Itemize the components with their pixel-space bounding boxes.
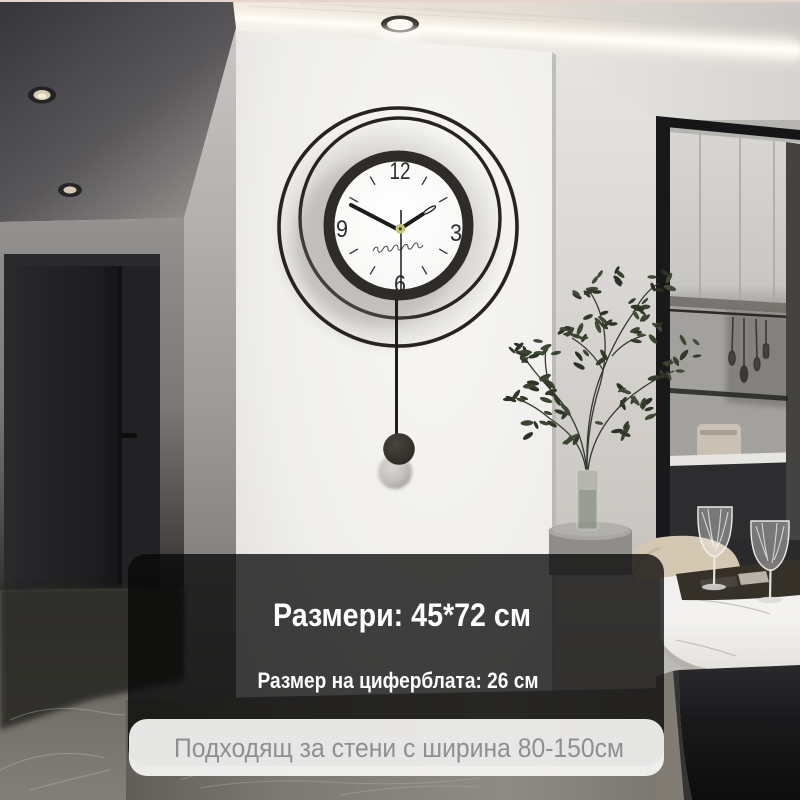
svg-text:12: 12 bbox=[390, 158, 411, 185]
svg-text:Размер на циферблата: 26 см: Размер на циферблата: 26 см bbox=[258, 668, 539, 693]
svg-text:6: 6 bbox=[394, 271, 406, 298]
svg-text:3: 3 bbox=[450, 220, 462, 247]
svg-text:Подходящ за стени с ширина 80-: Подходящ за стени с ширина 80-150см bbox=[174, 733, 624, 763]
svg-text:9: 9 bbox=[336, 216, 348, 243]
svg-text:Размери: 45*72 см: Размери: 45*72 см bbox=[273, 597, 531, 633]
